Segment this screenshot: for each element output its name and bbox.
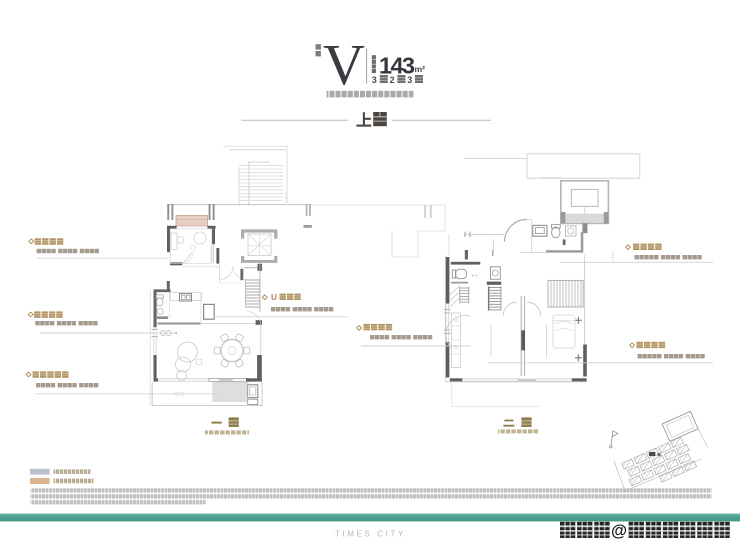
svg-text:U: U: [271, 293, 277, 302]
svg-text:m²: m²: [415, 64, 426, 74]
svg-text:V: V: [323, 32, 365, 97]
svg-text:TIMES CITY: TIMES CITY: [335, 530, 406, 539]
svg-text:@: @: [611, 522, 627, 540]
svg-text:3: 3: [407, 75, 412, 85]
svg-text:2: 2: [390, 75, 395, 85]
svg-text:3: 3: [372, 75, 377, 85]
